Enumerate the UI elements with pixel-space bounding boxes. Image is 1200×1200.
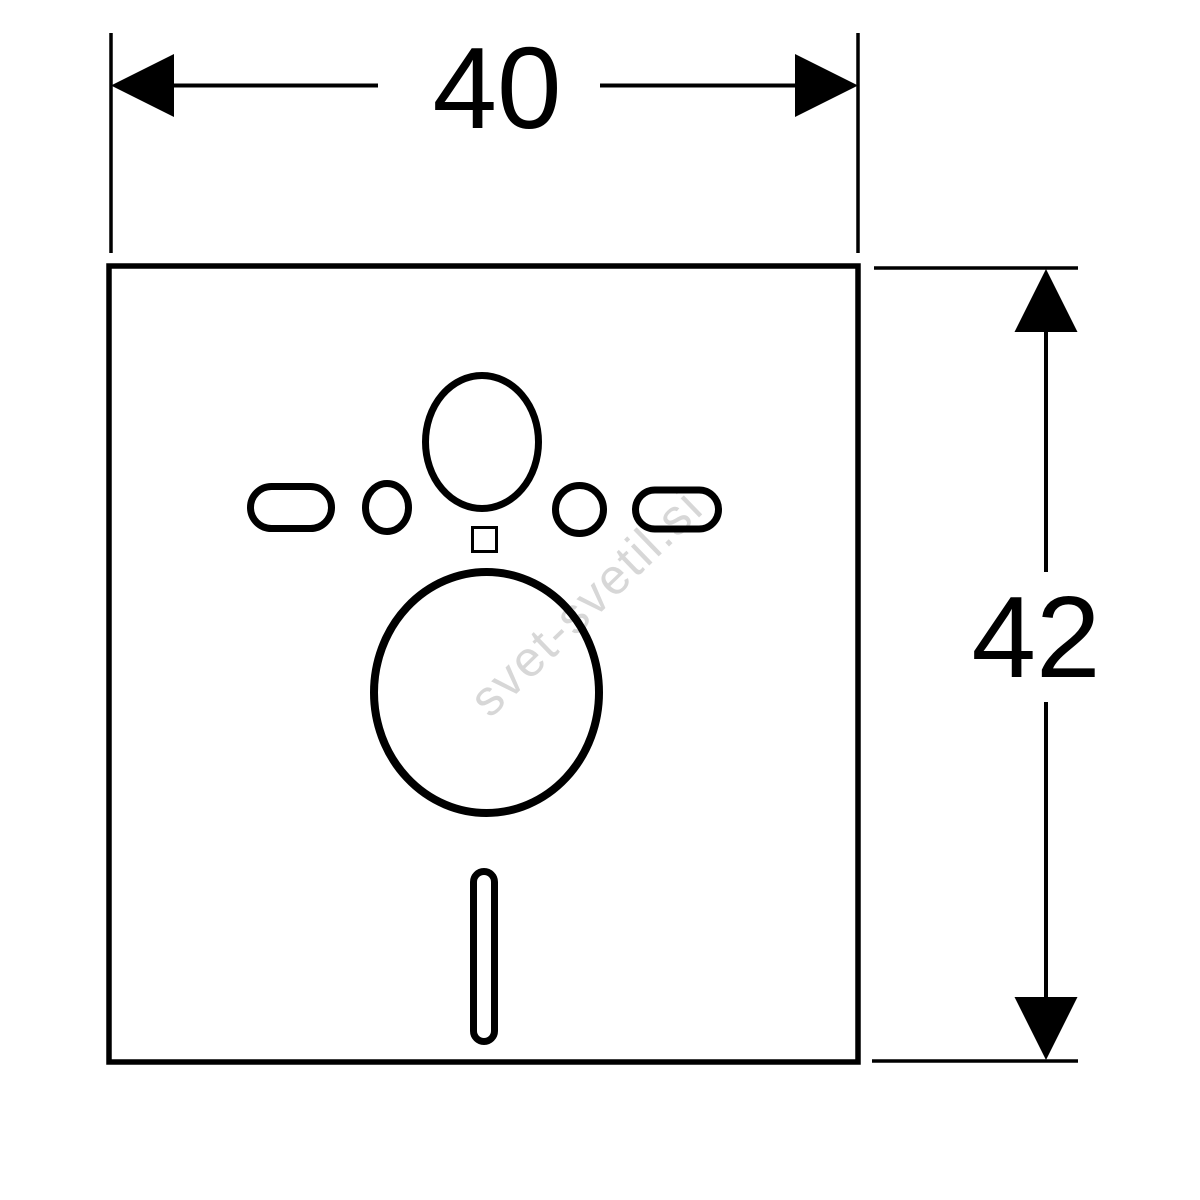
dimension-width: 40 (111, 23, 858, 253)
height-arrow-up-icon (1015, 269, 1078, 332)
dimension-height: 42 (872, 268, 1101, 1061)
technical-drawing-canvas: svet-svetil.si 40 42 (0, 0, 1200, 1200)
height-dimension-value: 42 (971, 572, 1100, 702)
insulation-plate-drawing: svet-svetil.si 40 42 (0, 0, 1200, 1200)
height-arrow-down-icon (1015, 997, 1078, 1060)
width-arrow-right-icon (795, 54, 858, 117)
width-arrow-left-icon (111, 54, 174, 117)
width-dimension-value: 40 (432, 23, 561, 153)
